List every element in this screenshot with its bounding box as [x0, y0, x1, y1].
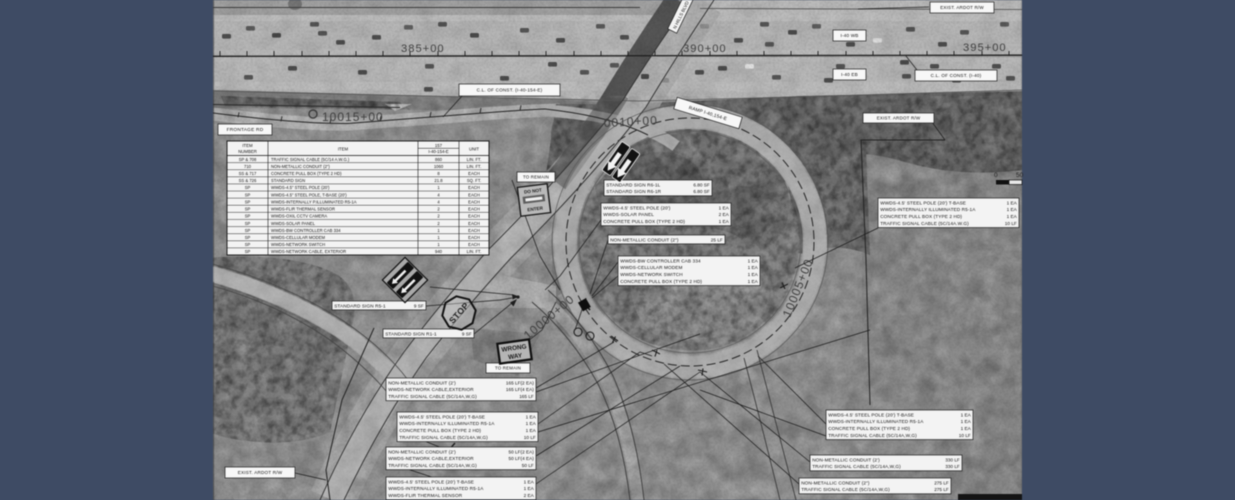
svg-text:WWDS-BW CONTROLLER CAB 334: WWDS-BW CONTROLLER CAB 334: [620, 258, 701, 263]
svg-text:10 LF: 10 LF: [1005, 221, 1017, 226]
svg-text:1 EA: 1 EA: [961, 419, 972, 424]
svg-text:1 EA: 1 EA: [748, 265, 759, 270]
svg-text:390+00: 390+00: [683, 43, 727, 55]
svg-text:WWDS-4.5" STEEL POLE (20'): WWDS-4.5" STEEL POLE (20'): [271, 185, 330, 190]
svg-text:WWDS-4.5' STEEL POLE (20') T-B: WWDS-4.5' STEEL POLE (20') T-BASE: [828, 412, 914, 417]
svg-text:SP: SP: [245, 221, 251, 226]
svg-text:WWDS-NETWORK CABLE,EXTERIOR: WWDS-NETWORK CABLE,EXTERIOR: [388, 387, 474, 392]
svg-text:50 LF(4 EA): 50 LF(4 EA): [509, 456, 535, 461]
svg-text:50 LF(2 EA): 50 LF(2 EA): [509, 449, 535, 454]
svg-text:EACH: EACH: [468, 221, 480, 226]
svg-text:WWDS-NETWORK CABLE, EXTERIOR: WWDS-NETWORK CABLE, EXTERIOR: [271, 249, 346, 254]
svg-text:275 LF: 275 LF: [934, 487, 949, 492]
svg-text:275 LF: 275 LF: [934, 480, 949, 485]
svg-text:CONCRETE PULL BOX (TYPE 2 HD): CONCRETE PULL BOX (TYPE 2 HD): [620, 279, 702, 284]
svg-text:TRAFFIC SIGNAL CABLE (5C/14A,W: TRAFFIC SIGNAL CABLE (5C/14A,W,G): [828, 433, 917, 438]
svg-text:SP: SP: [245, 185, 251, 190]
svg-text:CONCRETE PULL BOX (TYPE 2 HD): CONCRETE PULL BOX (TYPE 2 HD): [828, 426, 910, 431]
svg-text:SP: SP: [245, 235, 251, 240]
svg-text:10015+00: 10015+00: [322, 110, 384, 124]
svg-text:NON-METALLIC CONDUIT (2"): NON-METALLIC CONDUIT (2"): [801, 480, 870, 485]
svg-text:165 LF(4 EA): 165 LF(4 EA): [506, 387, 534, 392]
svg-text:50 LF: 50 LF: [522, 463, 534, 468]
svg-text:1 EA: 1 EA: [748, 279, 759, 284]
svg-text:EACH: EACH: [468, 242, 480, 247]
svg-text:EACH: EACH: [468, 214, 480, 219]
svg-text:I-40 WB: I-40 WB: [841, 33, 859, 38]
svg-text:EACH: EACH: [468, 199, 480, 204]
svg-text:1 EA: 1 EA: [961, 412, 972, 417]
svg-text:9 SF: 9 SF: [462, 331, 472, 336]
svg-text:STANDARD SIGN R1-1: STANDARD SIGN R1-1: [385, 331, 437, 336]
svg-text:TRAFFIC SIGNAL CABLE (5C/14A.W: TRAFFIC SIGNAL CABLE (5C/14A.W.G): [880, 221, 969, 226]
svg-text:TO REMAIN: TO REMAIN: [495, 366, 521, 371]
svg-text:NON-METALLIC CONDUIT (2"): NON-METALLIC CONDUIT (2"): [610, 237, 679, 242]
svg-text:TRAFFIC SIGNAL CABLE (5C/14A,W: TRAFFIC SIGNAL CABLE (5C/14A,W,G): [399, 435, 488, 440]
svg-text:1 EA: 1 EA: [719, 205, 730, 210]
svg-text:2 EA: 2 EA: [524, 493, 535, 498]
svg-text:6.80 SF: 6.80 SF: [693, 189, 710, 194]
svg-text:CONCRETE PULL BOX (TYPE 2 HD): CONCRETE PULL BOX (TYPE 2 HD): [399, 428, 481, 433]
svg-text:385+00: 385+00: [401, 43, 445, 55]
svg-text:WWDS-4.5' STEEL POLE (20') T-B: WWDS-4.5' STEEL POLE (20') T-BASE: [880, 200, 966, 205]
svg-text:WWDS-FLIR THERMAL SENSOR: WWDS-FLIR THERMAL SENSOR: [388, 493, 463, 498]
svg-text:WWDS-OXIL CCTV CAMERA: WWDS-OXIL CCTV CAMERA: [271, 214, 327, 219]
svg-text:CONCRETE PULL BOX (TYPE 2 HD): CONCRETE PULL BOX (TYPE 2 HD): [271, 171, 342, 176]
svg-text:I-40-154-E: I-40-154-E: [428, 149, 448, 154]
svg-text:SP: SP: [245, 199, 251, 204]
svg-text:2 EA: 2 EA: [719, 212, 730, 217]
svg-text:SP: SP: [245, 207, 251, 212]
svg-text:50: 50: [1016, 172, 1024, 179]
svg-text:EACH: EACH: [468, 192, 480, 197]
svg-text:10 LF: 10 LF: [959, 433, 971, 438]
svg-text:SP: SP: [245, 228, 251, 233]
svg-text:1 EA: 1 EA: [1007, 200, 1018, 205]
svg-text:LIN. FT.: LIN. FT.: [467, 249, 482, 254]
svg-text:SP: SP: [245, 214, 251, 219]
svg-text:1 EA: 1 EA: [748, 258, 759, 263]
svg-text:1 EA: 1 EA: [526, 428, 537, 433]
svg-text:NUMBER: NUMBER: [238, 149, 257, 154]
svg-text:LIN. FT.: LIN. FT.: [467, 157, 482, 162]
svg-text:1 EA: 1 EA: [1007, 214, 1018, 219]
svg-text:I-40 EB: I-40 EB: [841, 72, 858, 77]
svg-text:SP: SP: [245, 192, 251, 197]
svg-text:STANDARD SIGN R5-1: STANDARD SIGN R5-1: [334, 303, 386, 308]
svg-text:WWDS-INTERNALLY ILLUMINATED R5: WWDS-INTERNALLY ILLUMINATED R5-1A: [399, 421, 495, 426]
svg-text:1 EA: 1 EA: [719, 219, 730, 224]
svg-text:EACH: EACH: [468, 185, 480, 190]
svg-text:1 EA: 1 EA: [526, 414, 537, 419]
svg-text:21.8: 21.8: [434, 178, 443, 183]
svg-text:NON-METALLIC CONDUIT (2'): NON-METALLIC CONDUIT (2'): [388, 380, 456, 385]
svg-text:NON-METALLIC CONDUIT (2'): NON-METALLIC CONDUIT (2'): [388, 449, 456, 454]
svg-text:ITEM: ITEM: [242, 143, 253, 148]
svg-text:LIN. FT.: LIN. FT.: [467, 164, 482, 169]
svg-text:STANDARD SIGN R6-1R: STANDARD SIGN R6-1R: [606, 189, 661, 194]
svg-text:WWDS-4.5" STEEL POLE, T-BASE (: WWDS-4.5" STEEL POLE, T-BASE (20'): [271, 192, 347, 197]
svg-text:ITEM: ITEM: [338, 147, 349, 152]
svg-text:165 LF(2 EA): 165 LF(2 EA): [506, 380, 534, 385]
svg-text:WWDS-INTERNALLY ILLUMINATED R5: WWDS-INTERNALLY ILLUMINATED R5-1A: [388, 486, 484, 491]
svg-text:1 EA: 1 EA: [961, 426, 972, 431]
svg-text:TRAFFIC SIGNAL CABLE (5C/14A,W: TRAFFIC SIGNAL CABLE (5C/14A,W,G): [388, 463, 477, 468]
svg-text:WWDS-FLIR THERMAL SENSOR: WWDS-FLIR THERMAL SENSOR: [271, 207, 335, 212]
svg-text:WWDS-INTERNALLY ILLUMINATED R5: WWDS-INTERNALLY ILLUMINATED R5-1A: [880, 207, 976, 212]
svg-text:SP: SP: [245, 249, 251, 254]
svg-text:6.80 SF: 6.80 SF: [693, 182, 710, 187]
svg-text:NON-METALLIC CONDUIT (2'): NON-METALLIC CONDUIT (2'): [812, 457, 880, 462]
svg-text:TRAFFIC SIGNAL CABLE (5C/14A,W: TRAFFIC SIGNAL CABLE (5C/14A,W,G): [812, 464, 901, 469]
svg-text:TRAFFIC SIGNAL CABLE (5C/14A,W: TRAFFIC SIGNAL CABLE (5C/14A,W,G): [388, 394, 477, 399]
svg-text:330 LF: 330 LF: [945, 464, 960, 469]
svg-text:SP: SP: [245, 242, 251, 247]
svg-text:WWDS-4.5' STEEL POLE (20') T-B: WWDS-4.5' STEEL POLE (20') T-BASE: [388, 479, 474, 484]
svg-text:330 LF: 330 LF: [945, 457, 960, 462]
svg-text:EACH: EACH: [468, 235, 480, 240]
svg-text:EXIST. ARDOT R/W: EXIST. ARDOT R/W: [877, 116, 921, 121]
svg-text:SQ. FT.: SQ. FT.: [467, 178, 481, 183]
svg-text:CONCRETE PULL BOX (TYPE 2 HD): CONCRETE PULL BOX (TYPE 2 HD): [880, 214, 962, 219]
svg-text:UNIT: UNIT: [469, 147, 479, 152]
svg-text:STANDARD SIGN R6-1L: STANDARD SIGN R6-1L: [606, 182, 660, 187]
svg-text:C.L. OF CONST. (I-40-154-E): C.L. OF CONST. (I-40-154-E): [477, 88, 543, 93]
svg-text:FRONTAGE RD: FRONTAGE RD: [227, 127, 264, 133]
svg-text:WWDS-4.5' STEEL POLE (20') T-B: WWDS-4.5' STEEL POLE (20') T-BASE: [399, 414, 485, 419]
svg-text:WWDS-INTERNALLY P.ILLUMINATED: WWDS-INTERNALLY P.ILLUMINATED R5-1A: [271, 199, 357, 204]
svg-text:0010+00: 0010+00: [603, 113, 658, 130]
svg-text:TRAFFIC SIGNAL CABLE (5C/14A,W: TRAFFIC SIGNAL CABLE (5C/14A,W,G): [801, 487, 890, 492]
svg-text:WWDS-NETWORK SWITCH: WWDS-NETWORK SWITCH: [271, 242, 325, 247]
svg-text:EACH: EACH: [468, 171, 480, 176]
svg-text:1 EA: 1 EA: [524, 486, 535, 491]
svg-text:0: 0: [994, 172, 998, 179]
svg-text:940: 940: [435, 249, 443, 254]
svg-text:25 LF: 25 LF: [711, 237, 723, 242]
svg-text:157: 157: [435, 143, 443, 148]
svg-text:SS & 717: SS & 717: [239, 171, 257, 176]
svg-text:9 SF: 9 SF: [414, 303, 424, 308]
svg-text:TO REMAIN: TO REMAIN: [523, 175, 549, 180]
svg-text:WWDS-SOLAR PANEL: WWDS-SOLAR PANEL: [603, 212, 654, 217]
svg-text:C.L. OF CONST. (I-40): C.L. OF CONST. (I-40): [931, 73, 982, 78]
svg-text:WWDS-NETWORK SWITCH: WWDS-NETWORK SWITCH: [620, 272, 683, 277]
svg-text:WWDS-BW CONTROLLER CAB 334: WWDS-BW CONTROLLER CAB 334: [271, 228, 341, 233]
svg-text:1 EA: 1 EA: [524, 479, 535, 484]
svg-text:1 EA: 1 EA: [526, 421, 537, 426]
svg-text:EACH: EACH: [468, 228, 480, 233]
svg-text:165 LF: 165 LF: [519, 394, 534, 399]
svg-text:STANDARD SIGN: STANDARD SIGN: [271, 178, 305, 183]
svg-text:EXIST. ARDOT R/W: EXIST. ARDOT R/W: [940, 5, 984, 10]
svg-text:SP & 708: SP & 708: [239, 157, 257, 162]
svg-text:10 LF: 10 LF: [524, 435, 536, 440]
svg-text:860: 860: [435, 157, 443, 162]
svg-text:TRAFFIC SIGNAL CABLE (5C/14 A.: TRAFFIC SIGNAL CABLE (5C/14 A.W.G.): [271, 157, 350, 162]
svg-text:NON-METALLIC CONDUIT (2"): NON-METALLIC CONDUIT (2"): [271, 164, 330, 169]
svg-text:WWDS-4.5' STEEL POLE (20'): WWDS-4.5' STEEL POLE (20'): [603, 205, 671, 210]
svg-text:SS & 726: SS & 726: [239, 178, 257, 183]
svg-text:WWDS-CELLULAR MODEM: WWDS-CELLULAR MODEM: [271, 235, 325, 240]
svg-text:WWDS-INTERNALLY ILLUMINATED R5: WWDS-INTERNALLY ILLUMINATED R5-1A: [828, 419, 924, 424]
svg-text:EACH: EACH: [468, 207, 480, 212]
svg-text:1 EA: 1 EA: [1007, 207, 1018, 212]
svg-text:WWDS-CELLULAR MODEM: WWDS-CELLULAR MODEM: [620, 265, 682, 270]
svg-text:EXIST. ARDOT R/W: EXIST. ARDOT R/W: [238, 470, 283, 475]
svg-text:WWDS-SOLAR PANEL: WWDS-SOLAR PANEL: [271, 221, 316, 226]
svg-text:1 EA: 1 EA: [748, 272, 759, 277]
svg-text:710: 710: [244, 164, 252, 169]
svg-text:395+00: 395+00: [963, 42, 1007, 54]
svg-text:WWDS-NETWORK CABLE,EXTERIOR: WWDS-NETWORK CABLE,EXTERIOR: [388, 456, 474, 461]
svg-text:CONCRETE PULL BOX (TYPE 2 HD): CONCRETE PULL BOX (TYPE 2 HD): [603, 219, 685, 224]
svg-text:1060: 1060: [434, 164, 444, 169]
